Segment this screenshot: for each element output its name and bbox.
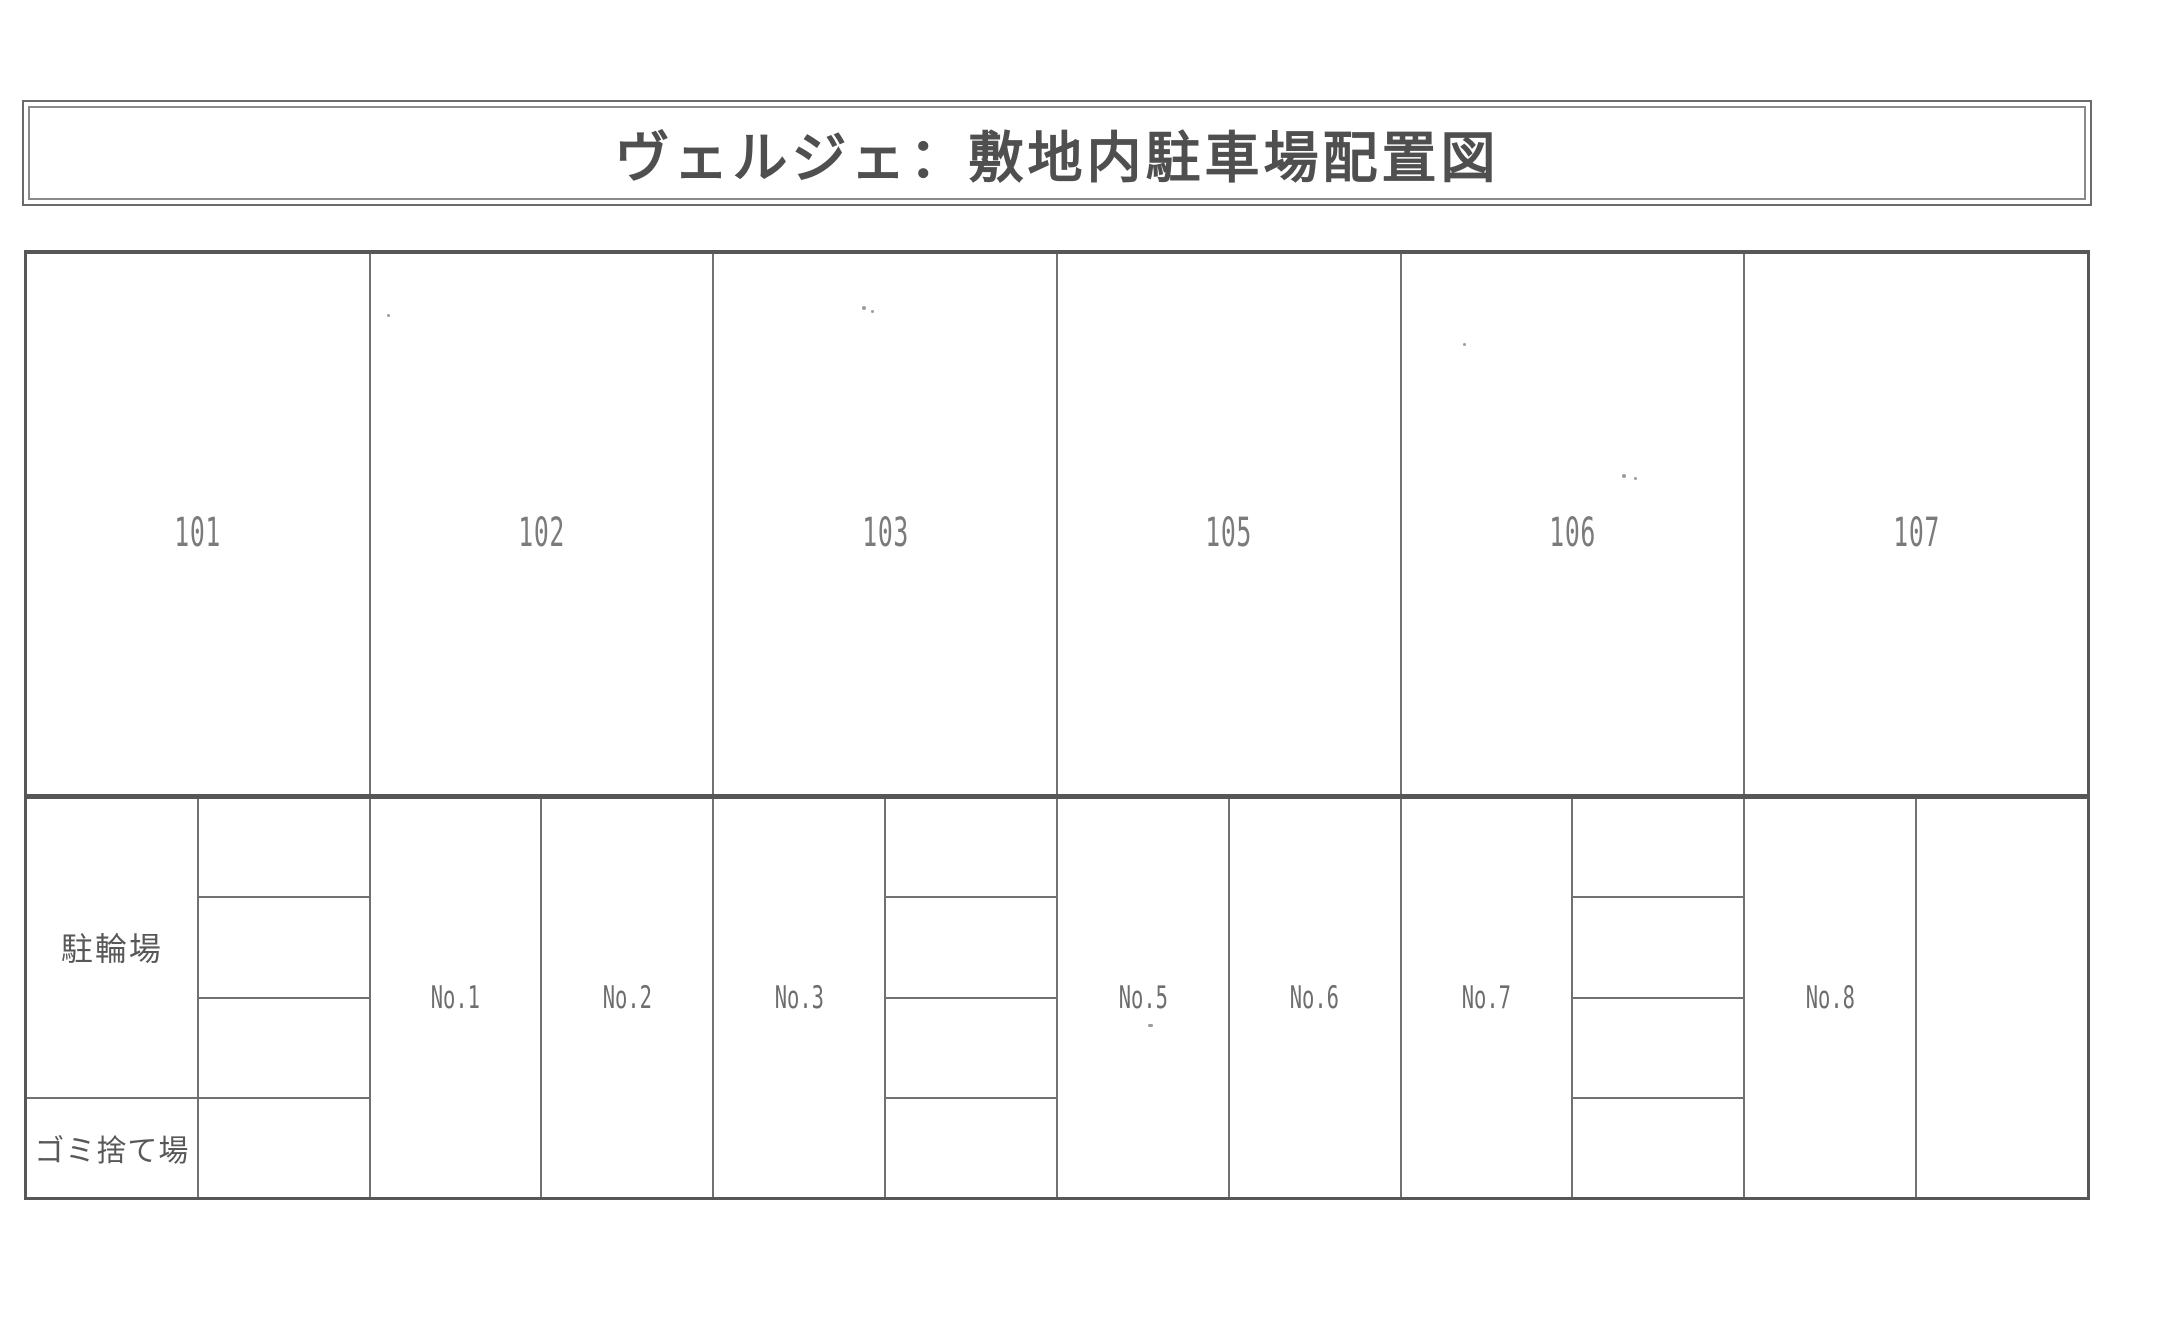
unit-label-102: 102 <box>518 510 565 556</box>
unit-cell-105: 105 <box>1058 254 1400 796</box>
unit-cell-101: 101 <box>27 254 369 796</box>
parking-spot-label-no2: No.2 <box>603 980 652 1016</box>
parking-spot-cell-no8: No.8 <box>1745 798 1915 1197</box>
rack-sub-cell <box>1573 1099 1743 1197</box>
site-plan-grid: 101 102 103 105 106 107 駐輪場 ゴミ捨て場 <box>24 250 2090 1200</box>
garbage-area-label: ゴミ捨て場 <box>34 1126 189 1170</box>
parking-spot-label-no8: No.8 <box>1806 980 1855 1016</box>
bicycle-parking-cell: 駐輪場 <box>27 798 197 1097</box>
unit-cell-103: 103 <box>714 254 1056 796</box>
parking-spot-cell-no5: No.5 <box>1058 798 1228 1197</box>
parking-spot-cell-no7: No.7 <box>1402 798 1572 1197</box>
unit-cell-102: 102 <box>371 254 713 796</box>
parking-spot-label-no6: No.6 <box>1290 980 1339 1016</box>
parking-spot-label-no3: No.3 <box>775 980 824 1016</box>
unit-cell-107: 107 <box>1745 254 2087 796</box>
rack-sub-cell <box>886 1099 1056 1197</box>
parking-spot-cell-no1: No.1 <box>371 798 541 1197</box>
page-title: ヴェルジェ：敷地内駐車場配置図 <box>614 113 1499 193</box>
unit-label-107: 107 <box>1893 510 1940 556</box>
rack-sub-cell <box>199 798 369 896</box>
parking-spot-label-no5: No.5 <box>1118 980 1167 1016</box>
rack-sub-cell <box>199 898 369 996</box>
unit-cell-106: 106 <box>1402 254 1744 796</box>
parking-spot-label-no7: No.7 <box>1462 980 1511 1016</box>
rack-sub-cell <box>199 999 369 1097</box>
rack-sub-cell <box>1573 999 1743 1097</box>
rack-sub-cell <box>886 798 1056 896</box>
rack-sub-cell <box>886 999 1056 1097</box>
unit-label-101: 101 <box>175 510 222 556</box>
unit-label-105: 105 <box>1205 510 1252 556</box>
parking-spot-cell-no6: No.6 <box>1230 798 1400 1197</box>
bicycle-parking-label: 駐輪場 <box>61 924 163 970</box>
title-box: ヴェルジェ：敷地内駐車場配置図 <box>22 100 2092 206</box>
rack-sub-cell <box>1573 898 1743 996</box>
parking-spot-cell-no3: No.3 <box>714 798 884 1197</box>
parking-layout-sheet: ヴェルジェ：敷地内駐車場配置図 101 102 103 105 106 107 … <box>0 0 2166 1342</box>
empty-stall-cell <box>1917 798 2087 1197</box>
rack-sub-cell <box>886 898 1056 996</box>
rack-sub-cell <box>1573 798 1743 896</box>
parking-spot-cell-no2: No.2 <box>542 798 712 1197</box>
rack-sub-cell <box>199 1099 369 1197</box>
garbage-area-cell: ゴミ捨て場 <box>27 1099 197 1197</box>
unit-label-106: 106 <box>1549 510 1596 556</box>
unit-label-103: 103 <box>862 510 909 556</box>
parking-spot-label-no1: No.1 <box>431 980 480 1016</box>
title-box-inner-border: ヴェルジェ：敷地内駐車場配置図 <box>28 106 2086 200</box>
